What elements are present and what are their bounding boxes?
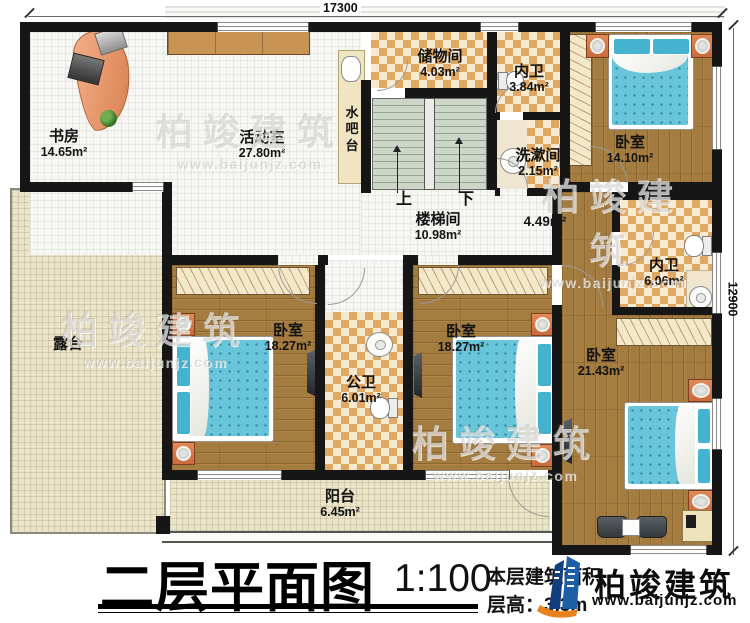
bed-icon xyxy=(624,402,714,490)
wall-segment xyxy=(560,182,590,192)
nightstand-icon xyxy=(691,34,714,58)
stairs-stringer xyxy=(424,98,435,190)
wall-segment xyxy=(156,516,170,534)
wall-segment xyxy=(361,80,371,193)
wall-segment xyxy=(612,307,720,315)
room-label-study: 书房 14.65m² xyxy=(41,128,88,160)
wall-segment xyxy=(712,148,722,252)
hallway-floor xyxy=(418,255,458,265)
nightstand-icon xyxy=(172,313,195,336)
wall-segment xyxy=(20,182,132,192)
window-icon xyxy=(712,252,722,314)
wall-segment xyxy=(552,305,562,545)
wall-segment xyxy=(162,182,172,480)
wall-segment xyxy=(523,112,560,120)
room-label-bedroom-top-right: 卧室 14.10m² xyxy=(607,134,654,166)
nightstand-icon xyxy=(531,313,554,336)
drawing-scale: 1:100 xyxy=(394,557,492,601)
wall-segment xyxy=(628,182,722,192)
sink-icon xyxy=(689,286,712,309)
balcony-railing xyxy=(162,531,558,543)
bed-icon xyxy=(172,336,274,442)
window-icon xyxy=(217,22,309,32)
window-icon xyxy=(425,470,510,480)
dimension-width: 17300 xyxy=(320,1,361,15)
room-label-hallway: 4.49m² xyxy=(524,214,567,230)
roof-stripes xyxy=(165,6,725,21)
hallway-floor xyxy=(278,255,318,265)
wall-segment xyxy=(403,265,413,470)
window-icon xyxy=(712,66,722,150)
tv-icon xyxy=(414,352,422,398)
room-label-stairwell: 楼梯间 10.98m² xyxy=(415,211,462,243)
toilet-icon xyxy=(684,234,712,256)
room-label-bedroom-bottom-left: 卧室 18.27m² xyxy=(265,322,312,354)
wall-segment xyxy=(318,255,328,265)
wall-segment xyxy=(712,312,722,398)
wall-segment xyxy=(280,470,425,480)
wall-segment xyxy=(612,192,620,232)
brand-logo-icon xyxy=(534,553,590,619)
nightstand-icon xyxy=(586,34,609,58)
nightstand-icon xyxy=(172,442,195,465)
title-underline xyxy=(98,604,478,609)
computer-icon xyxy=(686,515,696,528)
room-label-bedroom-bottom-middle: 卧室 18.27m² xyxy=(438,323,485,355)
wall-segment xyxy=(20,22,30,192)
room-label-water-bar: 水吧台 xyxy=(344,105,360,154)
room-label-public-bath: 公卫 6.01m² xyxy=(341,374,381,406)
wall-segment xyxy=(560,22,570,192)
wall-segment xyxy=(612,192,722,200)
room-label-storage: 储物间 4.03m² xyxy=(417,48,462,80)
wall-segment xyxy=(162,255,278,265)
window-icon xyxy=(480,22,519,32)
wall-segment xyxy=(405,88,487,98)
wall-segment xyxy=(307,22,480,32)
stairs-down-label: 下 xyxy=(458,185,474,209)
wall-segment xyxy=(517,22,595,32)
wall-segment xyxy=(712,22,722,66)
wall-segment xyxy=(495,112,500,120)
room-label-balcony: 阳台 6.45m² xyxy=(320,488,360,520)
cabinet-icon xyxy=(167,30,310,55)
window-icon xyxy=(595,22,692,32)
window-icon xyxy=(712,398,722,450)
wall-segment xyxy=(20,22,217,32)
dimension-height: 12900 xyxy=(725,279,739,320)
tv-icon xyxy=(564,418,572,464)
page-title: 二层平面图 xyxy=(100,543,375,622)
wall-segment xyxy=(162,470,197,480)
wall-segment xyxy=(712,448,722,555)
room-label-terrace: 露台 xyxy=(53,335,83,352)
window-icon xyxy=(132,182,164,192)
nightstand-icon xyxy=(688,379,714,402)
brand-url: www.baijunjz.com xyxy=(592,592,737,609)
room-label-bath-right: 内卫 6.06m² xyxy=(644,257,684,289)
sink-icon xyxy=(366,332,393,357)
floor-plan-page: { "dimensions": { "width_mm": "17300", "… xyxy=(0,0,750,623)
window-icon xyxy=(630,545,707,555)
stairs-icon xyxy=(433,98,487,190)
nightstand-icon xyxy=(531,444,554,467)
room-label-bath-top: 内卫 3.84m² xyxy=(509,63,549,95)
chair-icon xyxy=(637,516,667,538)
window-icon xyxy=(197,470,282,480)
room-label-activity: 活动室 27.80m² xyxy=(239,129,286,161)
bed-icon xyxy=(608,34,694,130)
stairs-up-label: 上 xyxy=(396,185,412,209)
dimension-line-top xyxy=(28,16,724,17)
wall-segment xyxy=(458,255,562,265)
wall-segment xyxy=(495,188,500,196)
tv-icon xyxy=(307,350,315,396)
room-label-bedroom-bottom-right: 卧室 21.43m² xyxy=(578,347,625,379)
room-balcony xyxy=(170,476,550,531)
wardrobe-icon xyxy=(616,318,712,346)
table-icon xyxy=(622,519,640,536)
title-underline xyxy=(98,612,478,613)
plant-icon xyxy=(100,110,117,127)
room-label-washroom: 洗漱间 2.15m² xyxy=(515,147,560,179)
bar-sink-icon xyxy=(341,56,361,82)
wall-segment xyxy=(403,255,418,265)
